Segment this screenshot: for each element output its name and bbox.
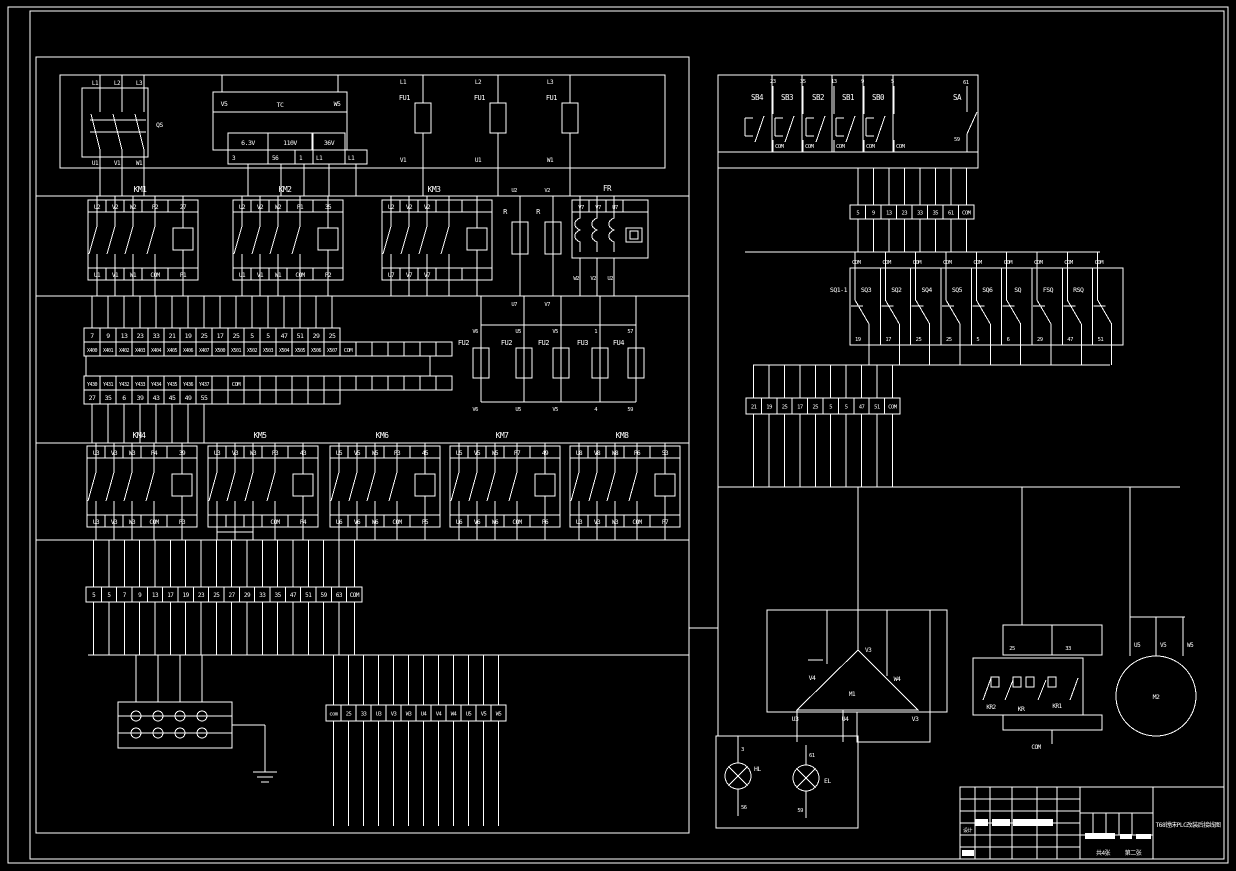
contactor-label: KM5 — [254, 431, 268, 440]
label: 1 — [594, 329, 597, 335]
contact — [1038, 680, 1046, 700]
label: V1 — [400, 157, 407, 164]
plc-output-cell — [372, 376, 388, 390]
label: 49 — [185, 394, 192, 402]
contact — [1007, 300, 1021, 324]
label: Y435 — [167, 382, 178, 388]
contact — [270, 226, 278, 254]
fuse-label: FU2 — [458, 339, 469, 347]
label: U7 — [612, 205, 618, 211]
plc-output-cell — [276, 376, 292, 390]
terminal-strip-label: COM — [350, 592, 360, 599]
phase-label: U1 — [92, 160, 99, 167]
label: 51 — [1098, 337, 1104, 343]
label: COM — [1064, 260, 1074, 266]
contact — [419, 226, 427, 254]
label: L1 — [400, 79, 407, 86]
kr-coil — [1013, 677, 1021, 687]
contactor-label: KM6 — [376, 431, 390, 440]
heater-element — [592, 212, 597, 252]
label: COM — [882, 260, 892, 266]
terminal-strip-label: 33 — [917, 211, 923, 217]
label: X505 — [295, 348, 306, 354]
kr-coil — [1048, 677, 1056, 687]
plc-output-cell — [404, 376, 420, 390]
label: L2 — [475, 79, 482, 86]
kr-coil — [1026, 677, 1034, 687]
plc-wire-cell — [324, 390, 340, 404]
label: X500 — [215, 348, 226, 354]
phase-label: V1 — [114, 160, 121, 167]
thermal-relay-box — [572, 212, 648, 258]
kr-coil — [991, 677, 999, 687]
label: V5 — [552, 407, 558, 413]
contactor-label: KM4 — [133, 431, 147, 440]
plc-output-cell — [420, 376, 436, 390]
label: 35 — [105, 394, 112, 402]
plc-wire-cell — [244, 390, 260, 404]
phase-label: L2 — [114, 80, 121, 87]
plc-output-cell — [356, 376, 372, 390]
terminal-strip-label: 35 — [275, 592, 282, 599]
contactor-label: KM8 — [616, 431, 630, 440]
label: 33 — [1065, 646, 1071, 652]
lamp-label: HL — [754, 765, 761, 773]
label: 17 — [885, 337, 891, 343]
label: 59 — [797, 808, 803, 814]
terminal-strip-label: 25 — [782, 405, 788, 411]
terminal-strip-label: 33 — [361, 712, 367, 718]
contact — [589, 472, 597, 501]
contact — [125, 226, 133, 254]
contact — [976, 300, 990, 324]
contact — [785, 116, 794, 142]
label: 13 — [831, 79, 837, 85]
terminal-strip-label: 5 — [829, 405, 832, 411]
phase-label: L1 — [92, 80, 99, 87]
label: 3 — [232, 155, 236, 162]
fr-contact-inner — [630, 231, 638, 239]
terminal-strip-label: 7 — [123, 592, 127, 599]
label: Y430 — [87, 382, 98, 388]
contact — [107, 226, 115, 254]
contact — [267, 472, 275, 501]
terminal-cell — [295, 150, 313, 164]
terminal-strip-label: 51 — [874, 405, 880, 411]
cad-schematic-canvas: L1U1L2V1L3W1QSV5TCW56.3V110V36V3561L1L1F… — [0, 0, 1236, 871]
label: 5 — [891, 79, 894, 85]
plc-input-cell — [372, 342, 388, 356]
label: X503 — [263, 348, 274, 354]
contact — [389, 472, 397, 501]
coil — [535, 474, 555, 496]
label: V7 — [595, 205, 601, 211]
redacted-bar — [1120, 834, 1132, 839]
terminal-strip-label: 17 — [167, 592, 174, 599]
terminal-strip-label: 5 — [107, 592, 111, 599]
terminal-block — [118, 702, 232, 748]
motor1-box — [767, 610, 947, 712]
contactor-box — [208, 458, 318, 515]
label: W4 — [894, 675, 901, 683]
label: X403 — [135, 348, 146, 354]
terminal-strip-label: 47 — [859, 405, 865, 411]
terminal-strip-label: 5 — [92, 592, 96, 599]
button-label: SB4 — [751, 93, 764, 102]
contact — [469, 472, 477, 501]
plc-input-cell — [388, 342, 404, 356]
label: L1 — [316, 155, 323, 162]
contactor-box — [330, 458, 440, 515]
fuse-label: FU4 — [613, 339, 624, 347]
plc-output-cell — [388, 376, 404, 390]
label: 51 — [297, 332, 304, 340]
contact — [1005, 680, 1013, 700]
label: V5 — [221, 100, 228, 108]
terminal-strip-label: 13 — [152, 592, 159, 599]
terminal-strip-label: W3 — [406, 712, 412, 718]
label: U5 — [1134, 642, 1141, 649]
label: V6 — [472, 407, 478, 413]
plc-wire-cell — [292, 390, 308, 404]
label: 25 — [233, 332, 240, 340]
plc-output-cell — [212, 376, 228, 390]
terminal-strip-label: U4 — [421, 712, 428, 718]
label: COM — [866, 144, 876, 150]
label: X401 — [103, 348, 114, 354]
plc-input-cell — [436, 342, 452, 356]
motor1-sub-box — [857, 712, 930, 742]
motor2-label: M2 — [1153, 693, 1160, 701]
label: 4 — [594, 407, 598, 413]
label: 9 — [106, 332, 110, 340]
coil — [415, 474, 435, 496]
label: V2 — [590, 276, 596, 282]
contact — [441, 226, 449, 254]
label: U7 — [511, 302, 517, 308]
contact — [1067, 300, 1081, 324]
contact — [607, 472, 615, 501]
plc-wire-cell — [212, 390, 228, 404]
label: 5 — [266, 332, 270, 340]
label: 6.3V — [241, 139, 255, 147]
label: COM — [775, 144, 785, 150]
terminal-strip-label: 25 — [812, 405, 818, 411]
label: W5 — [1187, 642, 1194, 649]
fuse-label: FU2 — [501, 339, 512, 347]
contact — [946, 300, 960, 324]
fuse — [415, 103, 431, 133]
label: 110V — [283, 139, 297, 147]
relay-label: KR2 — [986, 704, 996, 711]
label: Y431 — [103, 382, 114, 388]
terminal-strip-label: 47 — [290, 592, 297, 599]
coil — [467, 228, 487, 250]
label: COM — [1095, 260, 1105, 266]
terminal-cells — [382, 200, 492, 212]
plc-output-cell — [340, 376, 356, 390]
label: COM — [1004, 260, 1014, 266]
plc-output-cell — [292, 376, 308, 390]
switch-label: QS — [156, 121, 163, 129]
fuse-label: FU2 — [538, 339, 549, 347]
label: Y433 — [135, 382, 146, 388]
transformer-label: TC — [277, 101, 284, 109]
switch-label: SQ — [1014, 286, 1021, 294]
label: X504 — [279, 348, 290, 354]
plc-output-cell — [260, 376, 276, 390]
terminal-strip-label: 17 — [797, 405, 803, 411]
label: 1 — [299, 155, 303, 162]
resistor-label: R — [503, 208, 508, 216]
label: 56 — [272, 155, 279, 162]
switch-label: SQ4 — [922, 286, 933, 294]
contact — [967, 112, 977, 134]
contactor-box — [450, 458, 560, 515]
switch-label: SA — [953, 93, 962, 102]
switch-label: SQ3 — [861, 286, 872, 294]
fuse-label: FU1 — [399, 94, 410, 102]
terminal-strip-label: 35 — [932, 211, 938, 217]
plc-output-cell — [244, 376, 260, 390]
terminal-strip-label: V5 — [481, 712, 487, 718]
switch-label: SQ2 — [891, 286, 902, 294]
label: V3 — [865, 647, 872, 654]
label: COM — [973, 260, 983, 266]
label: V4 — [809, 674, 816, 682]
heater-element — [575, 212, 580, 252]
label: X405 — [167, 348, 178, 354]
label: 29 — [313, 332, 320, 340]
label: X400 — [87, 348, 98, 354]
contact — [876, 116, 885, 142]
redacted-bar — [1136, 834, 1151, 839]
fuse-label: FU3 — [577, 339, 588, 347]
terminal-strip-label: COM — [888, 405, 898, 411]
plc-wire-cell — [260, 390, 276, 404]
contactor-label: KM2 — [279, 185, 293, 194]
label: COM — [805, 144, 815, 150]
label: 36V — [324, 139, 335, 147]
contact — [209, 472, 217, 501]
label: U3 — [792, 715, 799, 723]
coil — [173, 228, 193, 250]
label: COM — [852, 260, 862, 266]
heater-element — [609, 212, 614, 252]
fuse — [490, 103, 506, 133]
label: U2 — [607, 276, 613, 282]
contact — [451, 472, 459, 501]
label: V2 — [544, 188, 550, 194]
terminal-strip-label: com — [329, 712, 339, 718]
label: 19 — [185, 332, 192, 340]
terminal-strip-label: V3 — [391, 712, 397, 718]
contact — [331, 472, 339, 501]
label: U5 — [515, 329, 521, 335]
terminal-strip-label: 21 — [751, 405, 757, 411]
contact — [1037, 300, 1051, 324]
tb-sheet-total: 共4张 — [1096, 849, 1111, 857]
label: X502 — [247, 348, 258, 354]
lamp-box — [716, 736, 858, 828]
label: 6 — [1007, 337, 1010, 343]
plc-output-cell — [436, 376, 452, 390]
terminal-strip-label: 9 — [138, 592, 142, 599]
contact — [106, 472, 114, 501]
label: 25 — [329, 332, 336, 340]
label: 5 — [250, 332, 254, 340]
terminal-strip-label: U3 — [376, 712, 382, 718]
contact — [367, 472, 375, 501]
label: 7 — [90, 332, 94, 340]
label: COM — [344, 348, 354, 354]
contact — [1098, 300, 1112, 324]
contact — [487, 472, 495, 501]
terminal-cells — [382, 268, 492, 280]
label: V7 — [544, 302, 550, 308]
label: 13 — [121, 332, 128, 340]
label: 25 — [916, 337, 922, 343]
button-label: SB3 — [781, 93, 793, 102]
label: L1 — [348, 155, 355, 162]
button-label: SB2 — [812, 93, 824, 102]
contact — [383, 226, 391, 254]
redacted-bar — [1013, 819, 1053, 826]
label: X406 — [183, 348, 194, 354]
contact — [88, 472, 96, 501]
terminal-strip-label: 23 — [198, 592, 205, 599]
redacted-bar — [992, 819, 1010, 826]
label: 19 — [855, 337, 861, 343]
contact — [629, 472, 637, 501]
label: 23 — [137, 332, 144, 340]
label: X507 — [327, 348, 338, 354]
label: Y436 — [183, 382, 194, 388]
contact — [124, 472, 132, 501]
label: Y432 — [119, 382, 130, 388]
label: W5 — [334, 100, 341, 108]
pushbutton-box — [718, 75, 978, 152]
contactor-label: KM7 — [496, 431, 510, 440]
contact — [147, 226, 155, 254]
fuse-label: FU1 — [546, 94, 557, 102]
contact — [755, 116, 764, 142]
label: COM — [943, 260, 953, 266]
fuse — [562, 103, 578, 133]
label: COM — [836, 144, 846, 150]
label: L3 — [547, 79, 554, 86]
label: X407 — [199, 348, 210, 354]
label: 47 — [1067, 337, 1073, 343]
terminal-strip-label: 33 — [259, 592, 266, 599]
label: X402 — [119, 348, 130, 354]
contact — [292, 226, 300, 254]
label: V5 — [1160, 642, 1167, 649]
label: 5 — [976, 337, 979, 343]
fr-contact — [626, 228, 642, 242]
label: U1 — [475, 157, 482, 164]
contact — [227, 472, 235, 501]
label: 25 — [201, 332, 208, 340]
contact — [509, 472, 517, 501]
plc-input-cell — [356, 342, 372, 356]
label: V6 — [472, 329, 478, 335]
pushbutton-bus — [718, 152, 978, 168]
label: W2 — [573, 276, 579, 282]
terminal-strip-label: 27 — [229, 592, 236, 599]
drawing-title: T68镗床PLC改装后接线图 — [1156, 821, 1221, 829]
incoming-power-box — [60, 75, 665, 168]
label: V7 — [578, 205, 584, 211]
contact — [983, 678, 991, 700]
label: 39 — [137, 394, 144, 402]
fuse-label: FU1 — [474, 94, 485, 102]
relay-label: KR1 — [1052, 703, 1062, 710]
terminal-strip-label: 59 — [320, 592, 327, 599]
contact — [816, 116, 825, 142]
lamp-label: EL — [824, 777, 831, 785]
label: 56 — [741, 805, 747, 811]
terminal-strip-label: 25 — [213, 592, 220, 599]
contactor-box — [570, 458, 680, 515]
terminal-strip-label: 5 — [856, 211, 859, 217]
motor1-label: M1 — [849, 691, 856, 698]
contact — [885, 300, 899, 324]
label: X501 — [231, 348, 242, 354]
coil — [318, 228, 338, 250]
label: X506 — [311, 348, 322, 354]
contactor-label: KM3 — [428, 185, 442, 194]
contact — [846, 116, 855, 142]
label: 35 — [800, 79, 806, 85]
switch-label: FSQ — [1043, 286, 1054, 294]
label: 17 — [217, 332, 224, 340]
contactor-box — [382, 212, 492, 268]
switch-label: RSQ — [1073, 286, 1084, 294]
label: 43 — [153, 394, 160, 402]
terminal-strip-label: U5 — [466, 712, 472, 718]
contact — [916, 300, 930, 324]
terminal-strip-label: 29 — [244, 592, 251, 599]
tb-sheet-no: 第二张 — [1125, 849, 1142, 857]
contactor-label: KM1 — [134, 185, 148, 194]
label: 3 — [741, 747, 744, 753]
terminal-strip-label: 13 — [886, 211, 892, 217]
label: 61 — [963, 80, 969, 86]
plc-output-cell — [324, 376, 340, 390]
plc-body — [86, 356, 430, 376]
terminal-strip-label: W5 — [496, 712, 502, 718]
label: U2 — [511, 188, 517, 194]
label: 25 — [1009, 646, 1015, 652]
terminal-strip-label: 19 — [766, 405, 772, 411]
wiring-diagram: L1U1L2V1L3W1QSV5TCW56.3V110V36V3561L1L1F… — [0, 0, 1236, 871]
label: COM — [232, 382, 242, 388]
contact — [571, 472, 579, 501]
label: COM — [1034, 260, 1044, 266]
label: U5 — [515, 407, 521, 413]
terminal-strip-label: 23 — [901, 211, 907, 217]
contact — [855, 300, 869, 324]
phase-label: L3 — [136, 80, 143, 87]
label: 25 — [946, 337, 952, 343]
coil — [172, 474, 192, 496]
label: 33 — [153, 332, 160, 340]
terminal-strip-label: 51 — [305, 592, 312, 599]
plc-output-cell — [308, 376, 324, 390]
terminal-strip-label: V4 — [436, 712, 443, 718]
contactor-box — [88, 212, 198, 268]
